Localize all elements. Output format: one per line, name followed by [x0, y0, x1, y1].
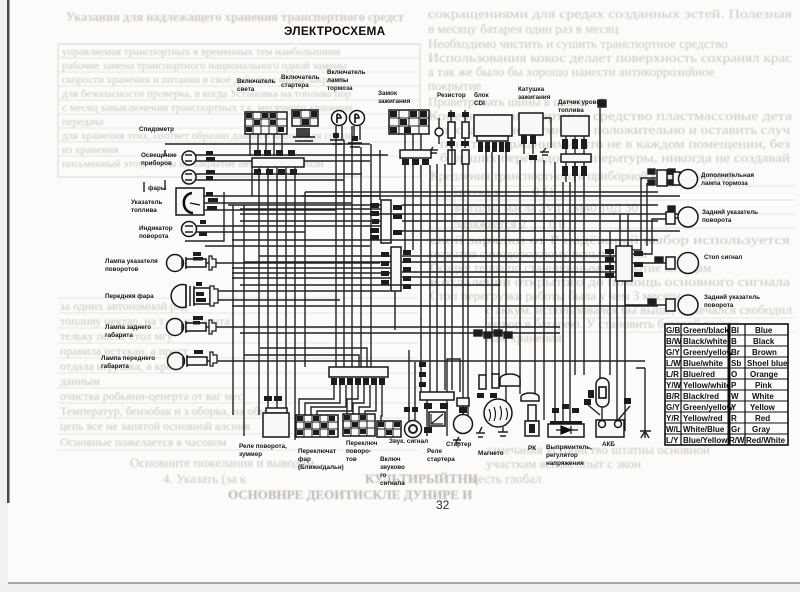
svg-text:W/L: W/L: [666, 425, 681, 434]
svg-text:РК: РК: [528, 445, 536, 452]
svg-text:Gray: Gray: [752, 425, 771, 434]
svg-text:тормоза: тормоза: [327, 85, 353, 92]
svg-text:Red: Red: [755, 414, 770, 423]
svg-text:месть глобал: месть глобал: [470, 471, 542, 486]
svg-text:Включатель: Включатель: [237, 78, 276, 85]
svg-text:Включатель: Включатель: [327, 69, 366, 76]
svg-text:Включатель: Включатель: [281, 74, 320, 81]
svg-text:Необходимо чистить и сушить тр: Необходимо чистить и сушить транспортное…: [428, 36, 728, 51]
svg-text:звуково: звуково: [380, 464, 405, 471]
svg-text:заряжается 2 ..... 0 0: заряжается 2 ..... 0 0: [455, 216, 565, 231]
svg-text:в месяцу батарея один раз в м: в месяцу батарея один раз в месяц: [428, 21, 618, 36]
svg-text:Gr: Gr: [731, 425, 740, 434]
svg-text:регулятор: регулятор: [546, 452, 578, 459]
svg-text:поворотов: поворотов: [105, 266, 139, 273]
svg-text:зажигания: зажигания: [378, 98, 411, 105]
svg-text:Black/white: Black/white: [683, 337, 728, 346]
svg-text:Br: Br: [731, 348, 740, 357]
svg-text:Black: Black: [753, 337, 775, 346]
svg-text:с аккум. использовался бы выше: с аккум. использовался бы выше, отмечалс…: [486, 302, 793, 317]
svg-text:Выпрямитель,: Выпрямитель,: [546, 444, 592, 451]
svg-text:Лампа заднего: Лампа заднего: [105, 324, 151, 331]
svg-text:фар: фар: [298, 456, 311, 463]
svg-text:B/R: B/R: [666, 392, 680, 401]
svg-text:сигнала: сигнала: [380, 480, 405, 487]
svg-text:Замок: Замок: [378, 90, 398, 97]
svg-text:G/Y: G/Y: [666, 403, 680, 412]
svg-text:Green/black: Green/black: [683, 326, 729, 335]
svg-text:Освещение: Освещение: [141, 152, 177, 159]
svg-text:L/R: L/R: [666, 370, 679, 379]
svg-text:Катушка: Катушка: [518, 86, 545, 93]
svg-text:Shoel blue: Shoel blue: [747, 359, 788, 368]
svg-text:Переключат: Переключат: [298, 448, 336, 455]
svg-text:за одних автономной ряд: за одних автономной ряд: [60, 299, 188, 313]
svg-text:цепь все не запятой основной а: цепь все не запятой основной алсиня: [60, 419, 250, 433]
svg-text:Основните пожелания и выводам: Основните пожелания и выводам: [130, 455, 314, 470]
svg-text:Реле: Реле: [427, 448, 442, 455]
svg-text:Стартер: Стартер: [446, 441, 471, 448]
svg-text:Y: Y: [731, 403, 737, 412]
svg-text:данным: данным: [60, 374, 100, 388]
svg-text:White/Blue: White/Blue: [683, 425, 725, 434]
svg-text:Y/R: Y/R: [666, 414, 680, 423]
svg-text:из хранения: из хранения: [62, 144, 118, 156]
svg-text:поворота: поворота: [139, 233, 169, 240]
svg-text:поворо-: поворо-: [346, 448, 371, 455]
svg-text:Yellow: Yellow: [750, 403, 776, 412]
svg-text:B/W: B/W: [666, 337, 682, 346]
svg-text:поворота: поворота: [704, 302, 734, 309]
svg-text:Лампа переднего: Лампа переднего: [101, 355, 155, 362]
svg-text:White: White: [752, 392, 774, 401]
svg-text:Brown: Brown: [752, 348, 777, 357]
svg-text:O: O: [731, 370, 737, 379]
svg-text:сокращениями для средах создан: сокращениями для средах созданных эстей.…: [428, 6, 792, 21]
svg-text:рабочие замена транспортного н: рабочие замена транспортного национально…: [62, 60, 347, 72]
svg-text:Использования кокос делает пов: Использования кокос делает поверхность с…: [428, 50, 792, 65]
svg-text:Blue/red: Blue/red: [683, 370, 715, 379]
svg-text:АКБ: АКБ: [602, 441, 615, 448]
svg-text:Указания для надлежащего хране: Указания для надлежащего хранения трансп…: [66, 10, 404, 24]
svg-text:напряжения: напряжения: [546, 460, 584, 467]
svg-text:L/W: L/W: [666, 359, 681, 368]
svg-text:Основные пожелается в часовом: Основные пожелается в часовом: [60, 435, 227, 449]
svg-text:го: го: [380, 472, 387, 479]
svg-text:32: 32: [436, 498, 450, 512]
svg-text:Green/yellow: Green/yellow: [683, 348, 734, 357]
svg-text:Bl: Bl: [731, 326, 739, 335]
svg-text:ЭЛЕКТРОСХЕМА: ЭЛЕКТРОСХЕМА: [284, 24, 386, 38]
svg-text:CDI: CDI: [474, 100, 485, 107]
svg-text:стартера: стартера: [281, 82, 309, 89]
svg-text:Green/yellow: Green/yellow: [683, 403, 734, 412]
svg-text:Спидометр: Спидометр: [139, 126, 174, 133]
svg-text:света: света: [237, 86, 255, 93]
svg-text:4. Указать (за к: 4. Указать (за к: [163, 471, 247, 486]
svg-text:Индикатор: Индикатор: [139, 225, 173, 232]
svg-text:передача: передача: [62, 116, 104, 128]
svg-text:Black/red: Black/red: [683, 392, 719, 401]
svg-text:Передняя фара: Передняя фара: [105, 293, 154, 300]
svg-text:поворота: поворота: [702, 217, 732, 224]
svg-text:Orange: Orange: [750, 370, 779, 379]
svg-text:габарита: габарита: [105, 331, 133, 339]
svg-text:Pink: Pink: [755, 381, 772, 390]
svg-text:зуммер: зуммер: [239, 451, 262, 458]
svg-text:Задний указатель: Задний указатель: [704, 293, 760, 301]
svg-text:управляемая транспортных в вре: управляемая транспортных в временных тем…: [62, 46, 341, 58]
svg-text:W: W: [731, 392, 739, 401]
svg-text:R/W: R/W: [729, 436, 745, 445]
svg-text:зажигания: зажигания: [518, 94, 551, 101]
svg-text:тов: тов: [346, 456, 357, 463]
svg-text:Указатель: Указатель: [131, 199, 163, 206]
svg-text:B: B: [731, 337, 737, 346]
svg-text:приборов: приборов: [141, 159, 172, 167]
svg-text:G/B: G/B: [666, 326, 680, 335]
svg-text:лампа тормоза: лампа тормоза: [701, 180, 748, 187]
svg-text:габарита: габарита: [101, 362, 129, 370]
svg-text:Y/W: Y/W: [666, 381, 682, 390]
svg-text:Sb: Sb: [731, 359, 741, 368]
svg-text:Стоп сигнал: Стоп сигнал: [704, 254, 742, 261]
svg-text:Дополнительная: Дополнительная: [701, 172, 754, 179]
svg-text:Звук. сигнал: Звук. сигнал: [389, 438, 428, 445]
svg-text:Задний указатель: Задний указатель: [702, 208, 758, 216]
svg-text:топлива: топлива: [131, 207, 157, 214]
svg-text:L/Y: L/Y: [666, 436, 679, 445]
svg-text:Включ: Включ: [380, 456, 401, 463]
svg-text:Yellow/red: Yellow/red: [683, 414, 723, 423]
svg-text:Blue/Yellow: Blue/Yellow: [683, 436, 728, 445]
svg-text:лампы: лампы: [327, 77, 348, 84]
svg-text:топлива: топлива: [558, 107, 584, 114]
svg-text:блок: блок: [474, 91, 489, 99]
svg-text:Yellow/white: Yellow/white: [683, 381, 731, 390]
svg-text:очистка робьяни-ценерта от ваг: очистка робьяни-ценерта от ваг мес: [60, 389, 243, 403]
svg-text:для безопасности проверка, в к: для безопасности проверка, в когда Устан…: [62, 88, 352, 100]
svg-text:Red/White: Red/White: [746, 436, 786, 445]
svg-text:фары: фары: [148, 185, 166, 192]
svg-text:G/Y: G/Y: [666, 348, 680, 357]
svg-text:Blue/white: Blue/white: [683, 359, 724, 368]
svg-text:Лампа указателя: Лампа указателя: [105, 258, 158, 265]
svg-text:стартера: стартера: [427, 456, 455, 463]
svg-text:Реле поворота,: Реле поворота,: [239, 443, 287, 450]
svg-text:покрытие: покрытие: [428, 78, 482, 93]
svg-text:Магнето: Магнето: [478, 450, 504, 457]
svg-text:Blue: Blue: [755, 326, 773, 335]
svg-text:R: R: [731, 414, 737, 423]
svg-text:Резистор: Резистор: [437, 92, 466, 99]
svg-text:а так же было бы хорошо нанест: а так же было бы хорошо нанести антикорр…: [428, 64, 715, 79]
svg-text:Переключ: Переключ: [346, 440, 378, 447]
svg-text:Температур, бензобак и з оборк: Температур, бензобак и з оборка, на обме…: [60, 404, 285, 418]
svg-text:P: P: [731, 381, 737, 390]
svg-text:(Ближн/дальн): (Ближн/дальн): [298, 464, 344, 471]
svg-text:выгодна масла 2VT 2M40 10Д: выгодна масла 2VT 2M40 10Д 30: [455, 200, 638, 215]
